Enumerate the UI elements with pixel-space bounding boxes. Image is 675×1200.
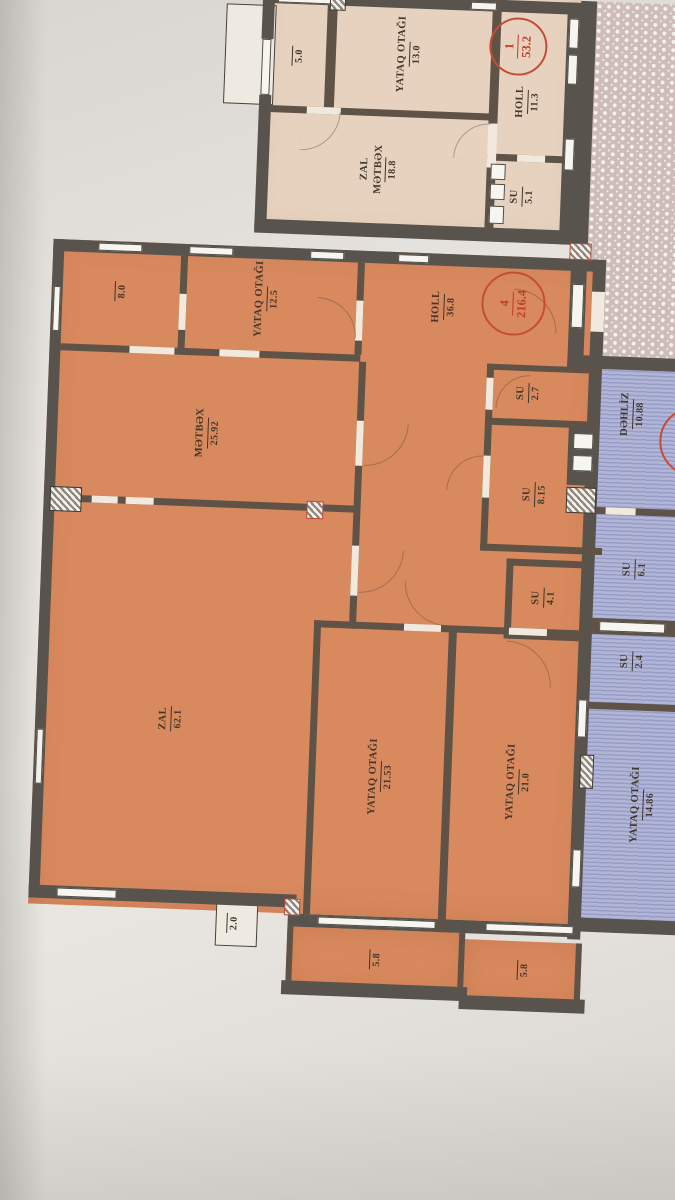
wall-segment — [261, 0, 275, 39]
floor-plan: 5.0 YATAQ OTAĞI13.0 ZALMƏTBƏX18.8 HOLL11… — [0, 0, 675, 1200]
window-marker — [310, 251, 344, 260]
door-opening — [517, 155, 545, 163]
room-label-metbex-25-92: MƏTBƏX25.92 — [193, 408, 223, 458]
room-label-yataq-otagi-12-5: YATAQ OTAĞI12.5 — [251, 260, 282, 338]
structural-column — [284, 898, 301, 916]
window-marker — [568, 18, 579, 48]
room-label-balcony-2-0: 2.0 — [226, 913, 241, 933]
wall-segment — [579, 918, 675, 936]
shaft-marker — [572, 455, 593, 472]
door-opening — [92, 496, 118, 504]
room-label-yataq-otagi-neighbor: YATAQ OTAĞI14.86 — [627, 766, 658, 844]
room-label-zal-metbex-18-8: ZALMƏTBƏX18.8 — [357, 144, 400, 195]
window-marker — [471, 2, 497, 11]
photo-background: 5.0 YATAQ OTAĞI13.0 ZALMƏTBƏX18.8 HOLL11… — [0, 0, 675, 1200]
wall-segment — [574, 943, 582, 1005]
structural-column — [49, 486, 82, 512]
shaft-marker — [490, 164, 506, 181]
door-opening — [485, 378, 493, 410]
structural-column — [330, 0, 346, 11]
room-label-su-5-1: SU5.1 — [507, 186, 535, 207]
window-marker — [398, 254, 429, 263]
window-marker — [567, 54, 578, 84]
room-label-balcony-5-0: 5.0 — [291, 46, 306, 66]
room-label-holl-36-8: HOLL36.8 — [429, 290, 458, 323]
room-label-yataq-otagi-13: YATAQ OTAĞI13.0 — [394, 16, 425, 94]
shaft-marker — [573, 433, 594, 450]
room-label-yataq-otagi-21-0: YATAQ OTAĞI21.0 — [503, 743, 534, 821]
shaft-marker — [489, 206, 505, 225]
door-opening — [126, 497, 154, 505]
photo-bottom-shadow — [0, 1050, 675, 1200]
photo-edge-shadow — [0, 0, 46, 1200]
window-marker — [98, 243, 142, 253]
room-label-su-2-4: SU2.4 — [618, 651, 646, 672]
room-label-yataq-otagi-21-53: YATAQ OTAĞI21.53 — [365, 738, 396, 816]
room-label-dehliz-10-88: DƏHLİZ10.88 — [618, 392, 647, 437]
window-marker — [189, 246, 233, 256]
structural-column — [566, 487, 597, 514]
room-label-balcony-5-8-right: 5.8 — [517, 960, 532, 980]
door-opening — [590, 292, 605, 332]
door-opening — [178, 294, 186, 330]
room-label-su-2-7: SU2.7 — [514, 383, 542, 404]
unit4-floor — [28, 239, 603, 925]
structural-column — [306, 501, 324, 520]
door-opening — [404, 624, 441, 632]
room-label-su-4-1: SU4.1 — [529, 588, 557, 609]
room-label-balcony-5-8-left: 5.8 — [369, 950, 384, 970]
window-marker — [564, 138, 575, 170]
structural-column — [579, 754, 594, 789]
room-label-su-6-1: SU6.1 — [620, 559, 648, 580]
room-label-su-8-15: SU8.15 — [520, 481, 549, 507]
room-label-holl-11-3: HOLL11.3 — [513, 85, 542, 118]
window-marker — [571, 849, 581, 887]
door-opening — [219, 349, 259, 358]
shaft-marker — [489, 184, 505, 201]
window-marker — [577, 699, 587, 737]
room-label-zal-62-1: ZAL62.1 — [156, 706, 185, 732]
room-label-8-0: 8.0 — [114, 281, 129, 301]
door-opening — [605, 507, 635, 515]
window-marker — [571, 284, 585, 328]
structural-column — [569, 243, 592, 261]
door-opening — [509, 628, 547, 636]
